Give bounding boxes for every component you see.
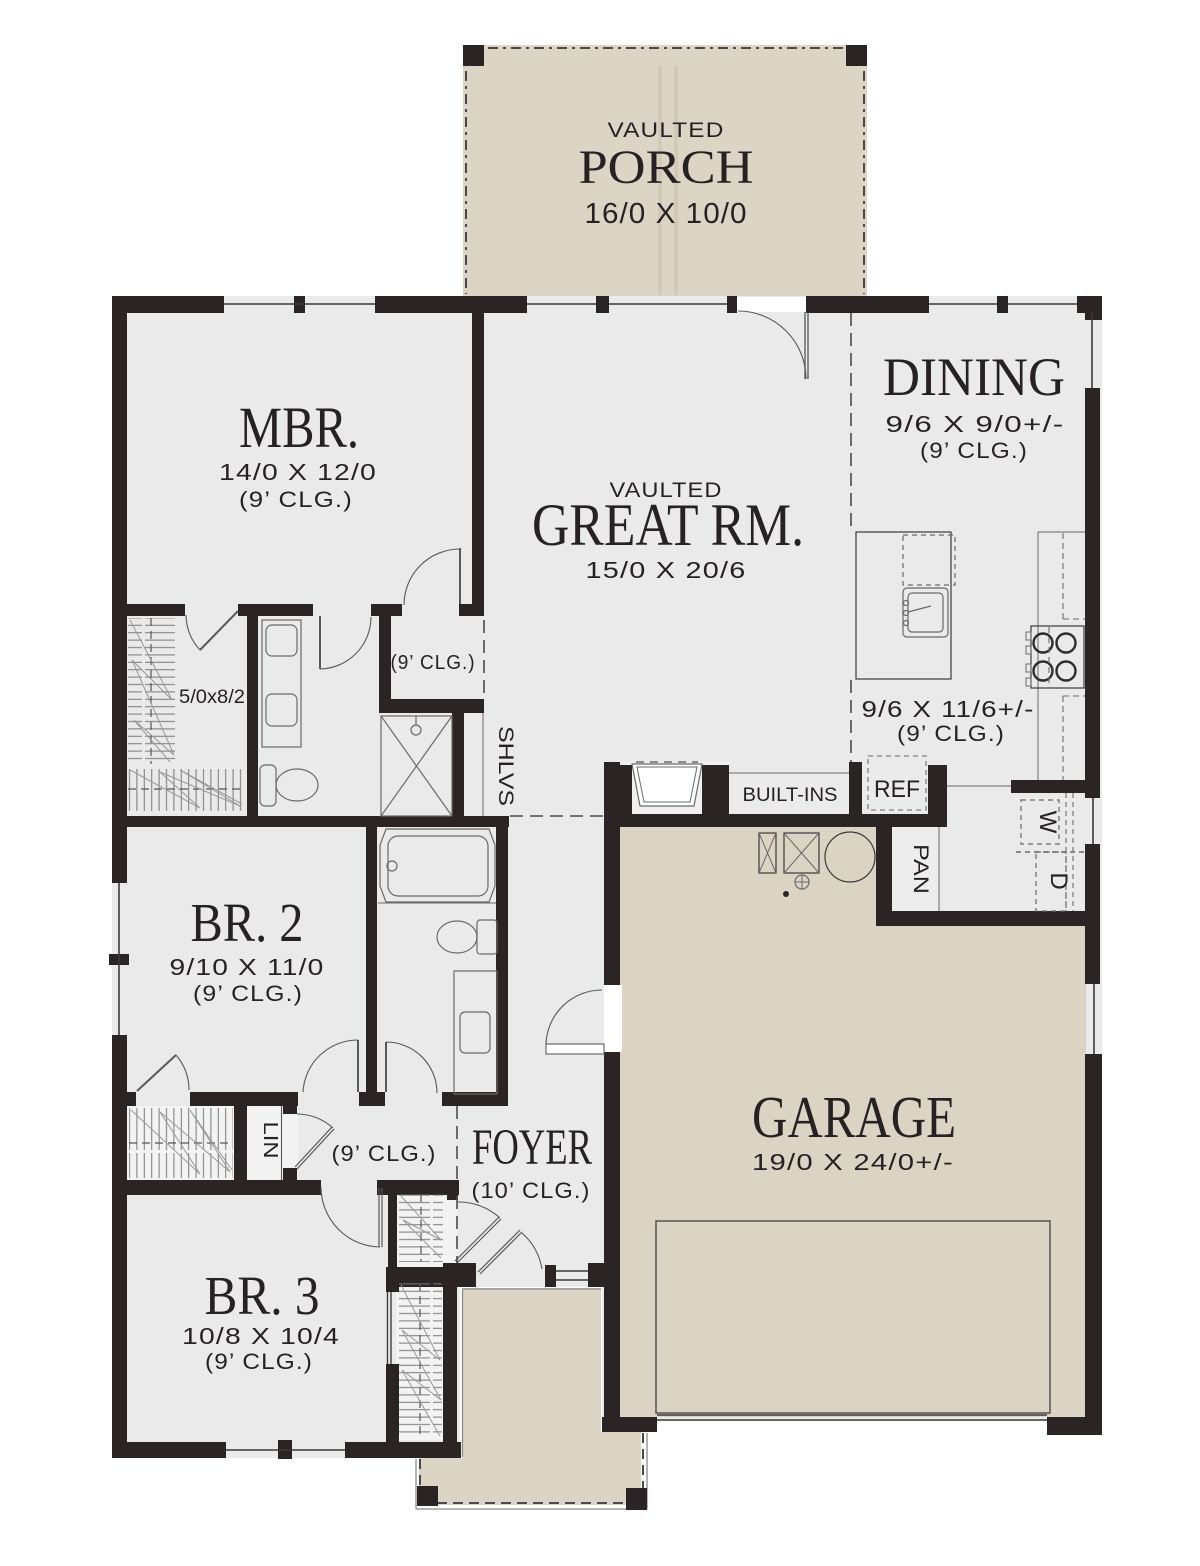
svg-text:9/6 X 11/6+/-: 9/6 X 11/6+/- (862, 696, 1035, 722)
svg-text:(9’ CLG.): (9’ CLG.) (897, 721, 1005, 746)
svg-text:DINING: DINING (883, 347, 1065, 407)
svg-text:BR. 2: BR. 2 (191, 892, 304, 953)
svg-text:GARAGE: GARAGE (752, 1084, 956, 1150)
svg-text:(9’ CLG.): (9’ CLG.) (391, 652, 476, 674)
svg-text:14/0 X 12/0: 14/0 X 12/0 (219, 459, 377, 485)
svg-text:FOYER: FOYER (472, 1120, 592, 1176)
svg-text:15/0 X 20/6: 15/0 X 20/6 (586, 557, 747, 583)
svg-text:VAULTED: VAULTED (608, 119, 725, 142)
svg-text:LIN: LIN (259, 1122, 281, 1159)
svg-text:REF: REF (874, 776, 920, 803)
svg-text:BUILT-INS: BUILT-INS (743, 784, 838, 806)
svg-text:(10’ CLG.): (10’ CLG.) (472, 1178, 591, 1203)
svg-text:PAN: PAN (909, 844, 932, 894)
svg-text:9/6 X 9/0+/-: 9/6 X 9/0+/- (886, 411, 1065, 437)
svg-text:BR. 3: BR. 3 (205, 1265, 320, 1326)
svg-text:16/0 X 10/0: 16/0 X 10/0 (585, 198, 748, 230)
svg-text:9/10 X 11/0: 9/10 X 11/0 (170, 954, 325, 980)
svg-text:(9’ CLG.): (9’ CLG.) (332, 1141, 437, 1166)
svg-text:(9’ CLG.): (9’ CLG.) (920, 438, 1028, 463)
svg-text:5/0x8/2: 5/0x8/2 (179, 687, 245, 708)
svg-text:MBR.: MBR. (239, 395, 359, 460)
svg-text:PORCH: PORCH (579, 141, 754, 194)
svg-text:10/8 X 10/4: 10/8 X 10/4 (182, 1323, 340, 1349)
svg-text:SHLVS: SHLVS (494, 726, 517, 806)
svg-text:19/0 X 24/0+/-: 19/0 X 24/0+/- (752, 1149, 954, 1175)
svg-text:(9’ CLG.): (9’ CLG.) (205, 1349, 313, 1374)
svg-text:W: W (1034, 811, 1061, 834)
svg-text:(9’ CLG.): (9’ CLG.) (239, 487, 353, 512)
svg-text:D: D (1045, 872, 1072, 889)
svg-text:(9’ CLG.): (9’ CLG.) (193, 981, 303, 1006)
svg-text:GREAT RM.: GREAT RM. (532, 492, 804, 558)
